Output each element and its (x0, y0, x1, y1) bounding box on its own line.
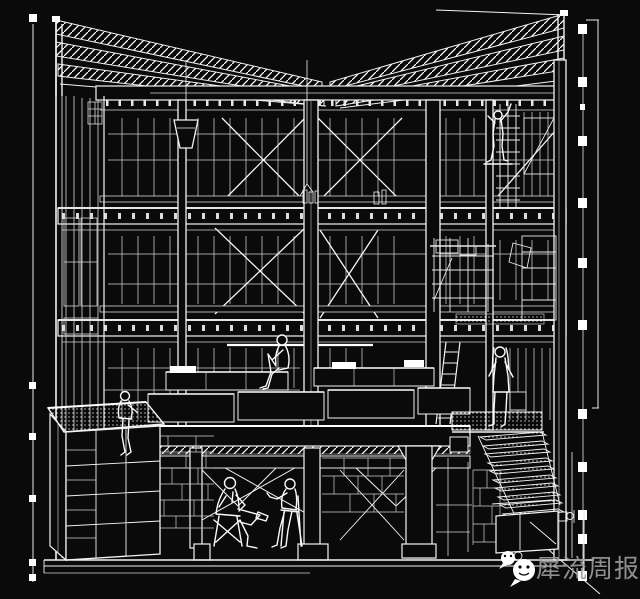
architectural-section-drawing (0, 0, 640, 599)
scale-bar-ticks (578, 24, 587, 581)
kiosk (48, 402, 164, 560)
watermark-text: 犀流周报 (536, 549, 640, 585)
reference-line (584, 20, 599, 580)
screenshot-canvas: 犀流周报 (0, 0, 640, 599)
figure-seated-companion (267, 479, 302, 548)
